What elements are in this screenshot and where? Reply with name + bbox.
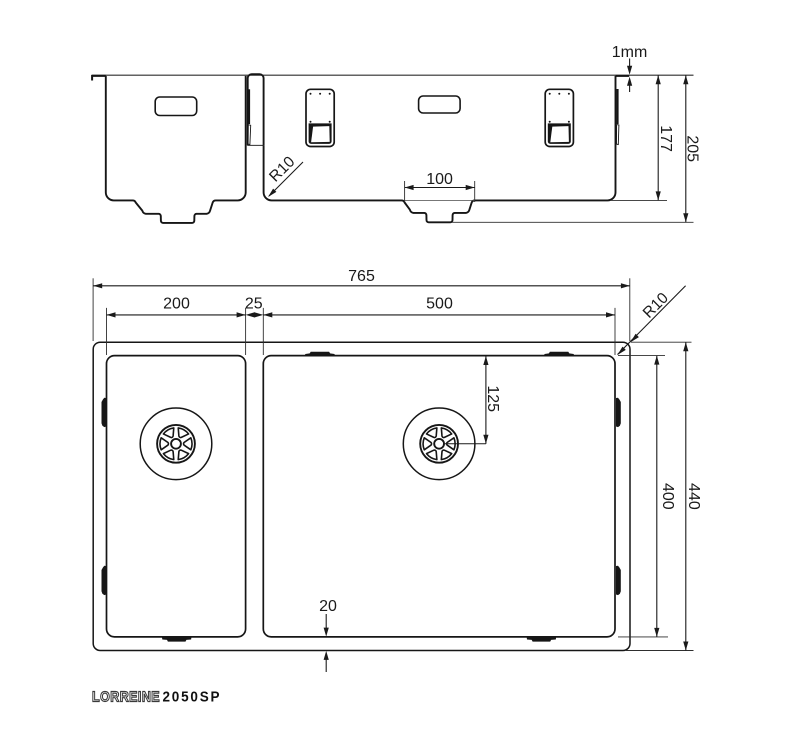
- svg-text:1mm: 1mm: [612, 44, 648, 61]
- svg-text:R10: R10: [640, 289, 672, 321]
- svg-text:100: 100: [426, 171, 453, 188]
- svg-text:R10: R10: [266, 153, 298, 185]
- svg-text:20: 20: [319, 598, 337, 615]
- svg-text:25: 25: [245, 296, 263, 313]
- svg-text:440: 440: [685, 483, 702, 510]
- svg-text:205: 205: [684, 135, 701, 162]
- svg-text:200: 200: [163, 296, 190, 313]
- svg-text:400: 400: [659, 483, 676, 510]
- svg-text:LORREINE: LORREINE: [92, 689, 160, 705]
- svg-text:500: 500: [426, 296, 453, 313]
- svg-text:125: 125: [484, 385, 501, 412]
- svg-text:2050SP: 2050SP: [163, 688, 222, 705]
- svg-text:177: 177: [657, 125, 674, 152]
- svg-text:765: 765: [348, 268, 375, 285]
